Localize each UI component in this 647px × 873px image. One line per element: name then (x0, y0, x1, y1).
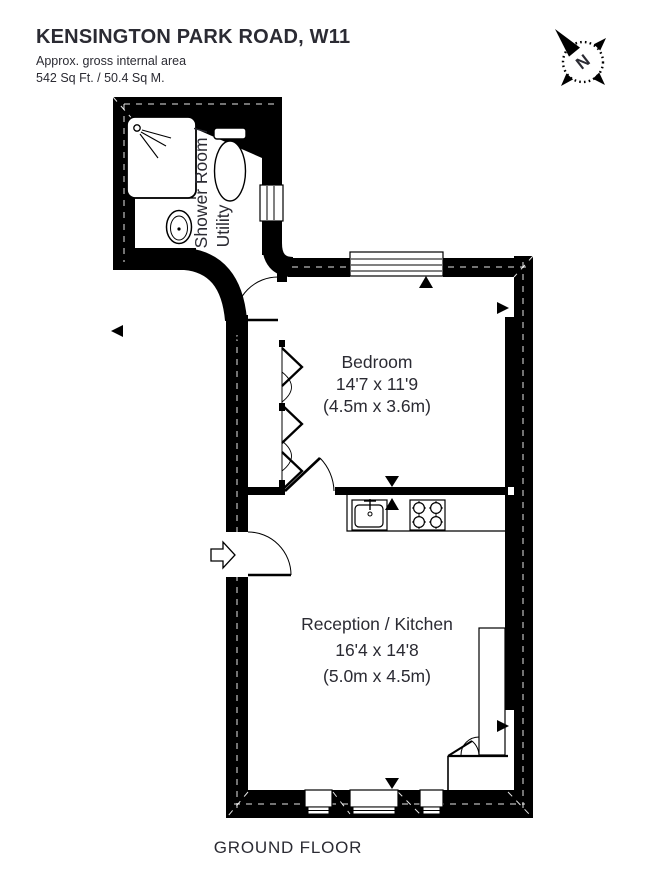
entrance-arrow-icon (211, 542, 235, 568)
reception-window-left (305, 790, 332, 814)
reception-window-centre (350, 790, 398, 814)
floor-plan: Shower Room / Utility Bedroom 14'7 x 11'… (0, 0, 647, 873)
shower-tray-icon (127, 117, 196, 198)
dimension-markers (111, 276, 509, 789)
hob-icon (410, 500, 445, 530)
reception-dims-metric: (5.0m x 4.5m) (323, 666, 431, 686)
toilet-icon (214, 128, 246, 201)
entrance-door-swing (248, 532, 291, 575)
bedroom-dims-imperial: 14'7 x 11'9 (336, 374, 418, 394)
reception-dims-imperial: 16'4 x 14'8 (335, 640, 419, 660)
dimension-marker (497, 302, 509, 314)
room-label-reception: Reception / Kitchen (301, 614, 453, 634)
room-label-shower-line1: Shower Room / (191, 128, 211, 249)
dimension-marker (385, 778, 399, 789)
kitchen-sink-icon (352, 499, 387, 530)
wardrobe-bifold-doors (279, 340, 302, 490)
tall-storage-unit (461, 628, 505, 755)
basin-icon (167, 211, 192, 244)
dimension-marker (419, 276, 433, 288)
walls (113, 97, 533, 818)
room-label-bedroom: Bedroom (341, 352, 412, 372)
wall-hatching (113, 97, 533, 816)
reception-window-right (420, 790, 443, 814)
dimension-marker (111, 325, 123, 337)
bedroom-window (350, 252, 443, 276)
bedroom-dims-metric: (4.5m x 3.6m) (323, 396, 431, 416)
dimension-marker (385, 476, 399, 487)
room-label-shower-line2: Utility (213, 204, 233, 247)
floorplan-page: { "header": { "title": "KENSINGTON PARK … (0, 0, 647, 873)
shower-window (260, 185, 283, 221)
floor-label: GROUND FLOOR (178, 838, 398, 858)
